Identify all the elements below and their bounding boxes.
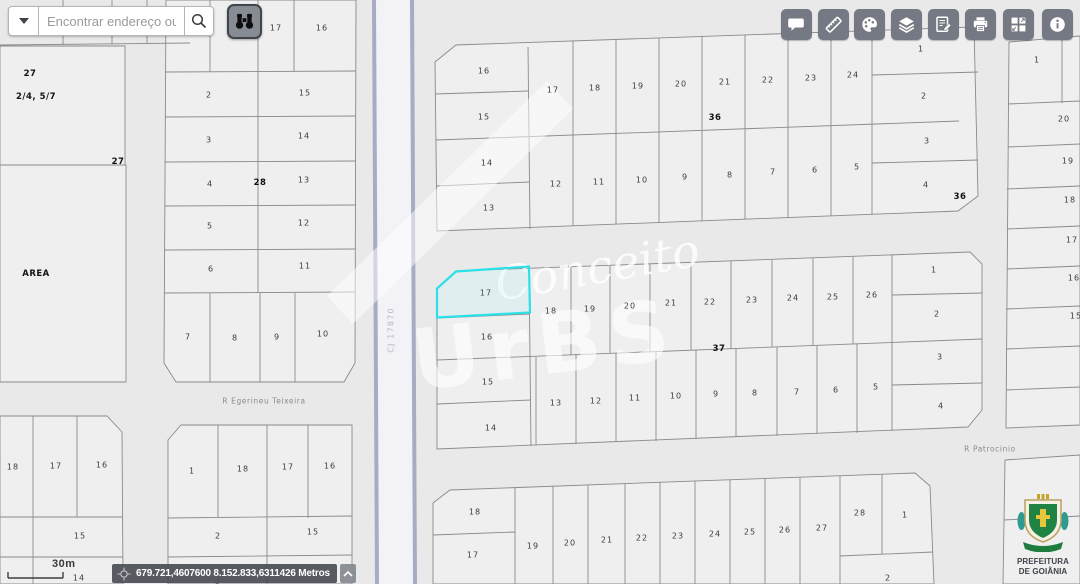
note-edit-icon bbox=[934, 15, 953, 34]
lot-label: 16 bbox=[324, 462, 336, 471]
printer-icon bbox=[971, 15, 990, 34]
lot-label: 12 bbox=[550, 180, 562, 189]
map-app: { "search": { "placeholder": "Encontrar … bbox=[0, 0, 1080, 584]
search-icon bbox=[190, 12, 208, 30]
search-group bbox=[8, 6, 214, 36]
palette-icon bbox=[860, 15, 879, 34]
mosaic-tool-button[interactable] bbox=[1003, 9, 1034, 40]
lot-label: 17 bbox=[282, 463, 294, 472]
comment-tool-button[interactable] bbox=[781, 9, 812, 40]
lot-label: 18 bbox=[545, 307, 557, 316]
lot-label: 11 bbox=[629, 394, 641, 403]
lot-label: 19 bbox=[527, 542, 539, 551]
print-tool-button[interactable] bbox=[965, 9, 996, 40]
lot-label: 2 bbox=[885, 574, 891, 583]
lot-label: 8 bbox=[752, 389, 758, 398]
lot-label: 21 bbox=[665, 299, 677, 308]
block-bottom-middle-polygon[interactable] bbox=[168, 425, 352, 584]
lot-label: 5 bbox=[207, 222, 213, 231]
lot-label: 26 bbox=[866, 291, 878, 300]
logo-text-line2: DE GOIÂNIA bbox=[1008, 567, 1078, 577]
style-tool-button[interactable] bbox=[854, 9, 885, 40]
lot-label: 25 bbox=[827, 293, 839, 302]
lot-label: 6 bbox=[812, 166, 818, 175]
lot-label: 5 bbox=[873, 383, 879, 392]
lot-label: 10 bbox=[317, 330, 329, 339]
search-dropdown-button[interactable] bbox=[8, 6, 38, 36]
lot-label: 15 bbox=[482, 378, 494, 387]
lot-label: 26 bbox=[779, 526, 791, 535]
chevron-down-icon bbox=[19, 18, 29, 24]
block-label: 2/4, 5/7 bbox=[16, 92, 56, 102]
city-logo: PREFEITURA DE GOIÂNIA bbox=[1008, 494, 1078, 576]
lot-label: 16 bbox=[1068, 274, 1080, 283]
lot-label: 17 bbox=[467, 551, 479, 560]
speech-bubble-icon bbox=[787, 15, 806, 34]
lot-label: 6 bbox=[208, 265, 214, 274]
lot-label: 23 bbox=[746, 296, 758, 305]
lot-label: 20 bbox=[1058, 115, 1070, 124]
lot-label: 9 bbox=[682, 173, 688, 182]
lot-label: 7 bbox=[770, 168, 776, 177]
street-label: CJ 17870 bbox=[387, 307, 396, 353]
block-label: 36 bbox=[709, 113, 722, 123]
lot-label: 9 bbox=[713, 390, 719, 399]
lot-label: 21 bbox=[719, 78, 731, 87]
binoculars-icon bbox=[234, 11, 255, 32]
coordinates-bar: 679.721,4607600 8.152.833,6311426 Metros bbox=[112, 564, 337, 583]
lot-label: 2 bbox=[934, 310, 940, 319]
block-label: 37 bbox=[713, 344, 726, 354]
lot-label: 17 bbox=[547, 86, 559, 95]
lot-label: 17 bbox=[50, 462, 62, 471]
lot-label: 24 bbox=[847, 71, 859, 80]
lot-label: 4 bbox=[923, 181, 929, 190]
lot-label: 25 bbox=[744, 528, 756, 537]
lot-label: 3 bbox=[206, 136, 212, 145]
block-27-polygon[interactable] bbox=[0, 46, 125, 165]
lot-label: 24 bbox=[787, 294, 799, 303]
lot-label: 18 bbox=[589, 84, 601, 93]
lot-label: 18 bbox=[1064, 196, 1076, 205]
crosshair-icon bbox=[117, 567, 131, 581]
lot-label: 7 bbox=[185, 333, 191, 342]
block-label: 27 bbox=[112, 157, 125, 167]
lot-label: 19 bbox=[632, 82, 644, 91]
search-input[interactable] bbox=[38, 6, 184, 36]
lot-label: 19 bbox=[584, 305, 596, 314]
lot-label: 17 bbox=[270, 24, 282, 33]
lot-label: 15 bbox=[299, 89, 311, 98]
lot-label: 14 bbox=[298, 132, 310, 141]
lot-label: 15 bbox=[74, 532, 86, 541]
lot-label: 10 bbox=[636, 176, 648, 185]
layers-tool-button[interactable] bbox=[891, 9, 922, 40]
lot-label: 11 bbox=[299, 262, 311, 271]
measure-tool-button[interactable] bbox=[818, 9, 849, 40]
lot-label: 7 bbox=[794, 388, 800, 397]
lot-label: 4 bbox=[938, 402, 944, 411]
block-area-polygon[interactable] bbox=[0, 165, 126, 382]
lot-label: 2 bbox=[921, 92, 927, 101]
street-label: R Egerineu Teixeira bbox=[222, 397, 305, 406]
lot-label: 19 bbox=[1062, 157, 1074, 166]
statusbar-collapse-button[interactable] bbox=[340, 564, 356, 583]
lot-label: 24 bbox=[709, 530, 721, 539]
street-label: R Patrocinio bbox=[964, 445, 1016, 454]
lot-label: 13 bbox=[298, 176, 310, 185]
info-icon bbox=[1048, 15, 1067, 34]
lot-label: 5 bbox=[854, 163, 860, 172]
lot-label: 6 bbox=[833, 386, 839, 395]
scale-label: 30m bbox=[52, 558, 76, 570]
lot-label: 18 bbox=[237, 465, 249, 474]
lot-label: 20 bbox=[624, 302, 636, 311]
lot-label: 2 bbox=[206, 91, 212, 100]
lot-label: 28 bbox=[854, 509, 866, 518]
lot-label: 27 bbox=[816, 524, 828, 533]
lot-label: 23 bbox=[672, 532, 684, 541]
lot-label: 1 bbox=[1034, 56, 1040, 65]
lot-label: 20 bbox=[675, 80, 687, 89]
binoculars-button[interactable] bbox=[227, 4, 262, 39]
grid-windows-icon bbox=[1009, 15, 1028, 34]
coordinates-readout: 679.721,4607600 8.152.833,6311426 Metros bbox=[136, 568, 330, 579]
lot-label: 22 bbox=[762, 76, 774, 85]
lot-label: 8 bbox=[232, 334, 238, 343]
notes-tool-button[interactable] bbox=[928, 9, 959, 40]
lot-label: 1 bbox=[189, 467, 195, 476]
lot-label: 16 bbox=[96, 461, 108, 470]
lot-label: 14 bbox=[73, 574, 85, 583]
lot-label: 15 bbox=[478, 113, 490, 122]
lot-label: 4 bbox=[207, 180, 213, 189]
lot-label: 12 bbox=[298, 219, 310, 228]
selected-parcel-17[interactable] bbox=[437, 267, 530, 318]
lot-label: 10 bbox=[670, 392, 682, 401]
lot-label: 3 bbox=[924, 137, 930, 146]
info-tool-button[interactable] bbox=[1042, 9, 1073, 40]
block-label: 36 bbox=[954, 192, 967, 202]
lot-label: 15 bbox=[1070, 312, 1080, 321]
lot-label: 1 bbox=[931, 266, 937, 275]
lot-label: 13 bbox=[483, 204, 495, 213]
lot-label: 22 bbox=[704, 298, 716, 307]
lot-label: 17 bbox=[1066, 236, 1078, 245]
block-bottom-right-polygon[interactable] bbox=[433, 473, 934, 584]
lot-label: 8 bbox=[727, 171, 733, 180]
lot-label: 21 bbox=[601, 536, 613, 545]
lot-label: 1 bbox=[902, 511, 908, 520]
lot-label: 15 bbox=[307, 528, 319, 537]
block-label: 27 bbox=[24, 69, 37, 79]
layers-icon bbox=[897, 15, 916, 34]
lot-label: 23 bbox=[805, 74, 817, 83]
logo-text-line1: PREFEITURA bbox=[1008, 557, 1078, 567]
lot-label: 22 bbox=[636, 534, 648, 543]
lot-label: 3 bbox=[937, 353, 943, 362]
chevron-up-icon bbox=[343, 571, 353, 577]
lot-label: 12 bbox=[590, 397, 602, 406]
map-canvas[interactable]: Conceito UrBS 272/4, 5/727AREA1716215314… bbox=[0, 0, 1080, 584]
lot-label: 2 bbox=[215, 532, 221, 541]
lot-label: 11 bbox=[593, 178, 605, 187]
lot-label: 18 bbox=[7, 463, 19, 472]
lot-label: 9 bbox=[274, 333, 280, 342]
lot-label: 14 bbox=[485, 424, 497, 433]
block-label: AREA bbox=[22, 269, 50, 279]
lot-label: 1 bbox=[918, 45, 924, 54]
lot-label: 16 bbox=[316, 24, 328, 33]
lot-label: 13 bbox=[550, 399, 562, 408]
lot-label: 16 bbox=[481, 333, 493, 342]
lot-label: 16 bbox=[478, 67, 490, 76]
coat-of-arms-icon bbox=[1017, 494, 1069, 552]
search-button[interactable] bbox=[184, 6, 214, 36]
block-far-right-polygon[interactable] bbox=[1006, 36, 1080, 428]
lot-label: 20 bbox=[564, 539, 576, 548]
lot-label: 18 bbox=[469, 508, 481, 517]
lot-label: 14 bbox=[481, 159, 493, 168]
statusbar: 679.721,4607600 8.152.833,6311426 Metros bbox=[112, 564, 356, 583]
ruler-icon bbox=[824, 15, 843, 34]
block-label: 28 bbox=[254, 178, 267, 188]
